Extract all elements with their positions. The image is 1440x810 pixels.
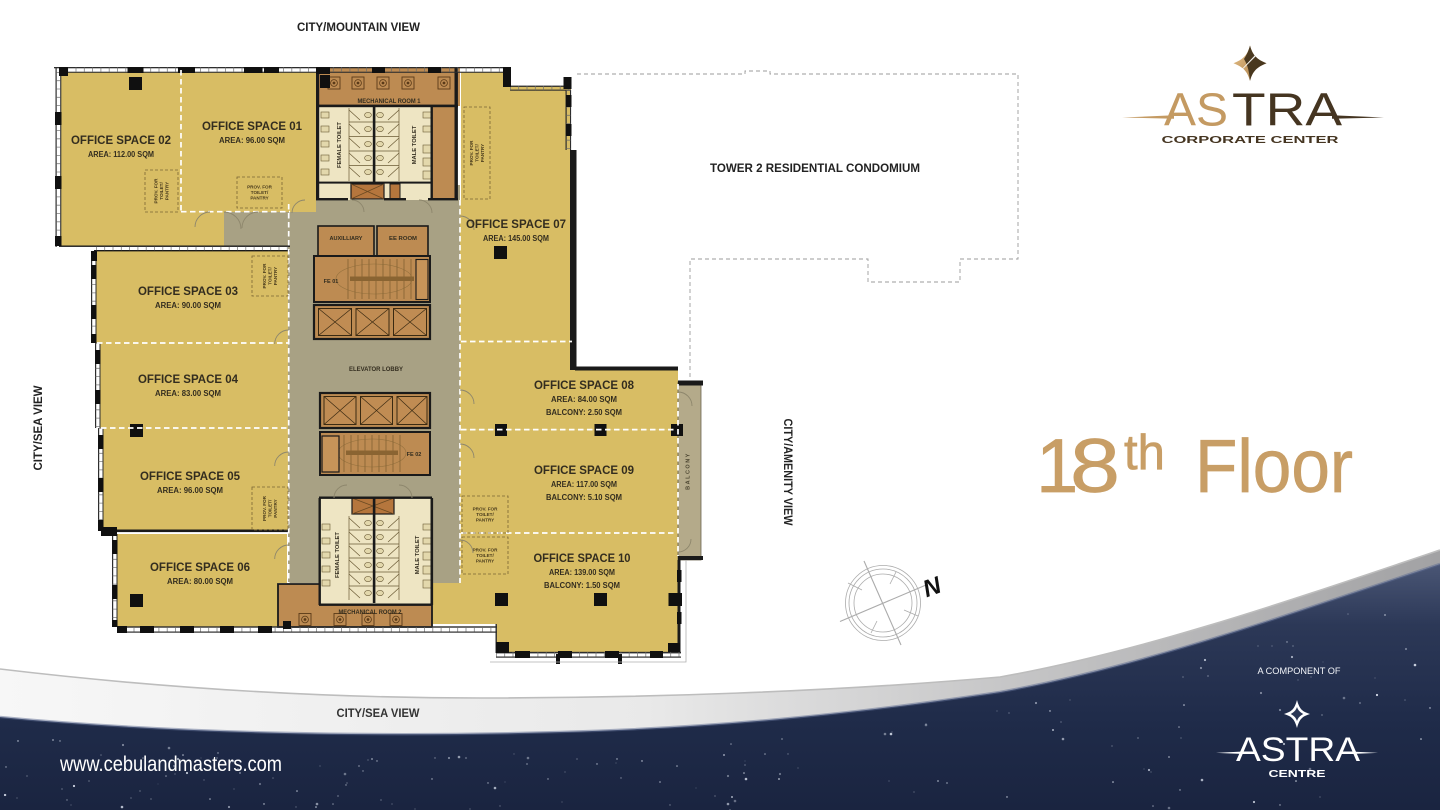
svg-text:FEMALE TOILET: FEMALE TOILET bbox=[337, 122, 343, 168]
svg-text:CITY/SEA VIEW: CITY/SEA VIEW bbox=[337, 708, 420, 720]
svg-text:MECHANICAL ROOM 2: MECHANICAL ROOM 2 bbox=[339, 610, 403, 616]
svg-text:AREA: 139.00 SQM: AREA: 139.00 SQM bbox=[549, 568, 615, 577]
svg-text:EE ROOM: EE ROOM bbox=[389, 236, 417, 242]
svg-text:th: th bbox=[1124, 426, 1165, 480]
svg-text:AREA: 84.00 SQM: AREA: 84.00 SQM bbox=[551, 395, 617, 404]
svg-text:OFFICE SPACE 09: OFFICE SPACE 09 bbox=[534, 463, 634, 477]
svg-text:BALCONY: BALCONY bbox=[686, 452, 692, 490]
svg-text:8: 8 bbox=[1070, 424, 1120, 509]
svg-text:FEMALE TOILET: FEMALE TOILET bbox=[335, 532, 341, 578]
svg-text:AREA: 112.00 SQM: AREA: 112.00 SQM bbox=[88, 150, 154, 159]
svg-text:AREA: 83.00 SQM: AREA: 83.00 SQM bbox=[155, 389, 221, 398]
svg-text:www.cebulandmasters.com: www.cebulandmasters.com bbox=[59, 753, 282, 776]
svg-text:OFFICE SPACE 07: OFFICE SPACE 07 bbox=[466, 217, 566, 231]
svg-text:AREA: 117.00 SQM: AREA: 117.00 SQM bbox=[551, 480, 617, 489]
svg-text:A COMPONENT OF: A COMPONENT OF bbox=[1258, 666, 1341, 677]
svg-text:BALCONY: 2.50 SQM: BALCONY: 2.50 SQM bbox=[546, 408, 622, 417]
svg-text:ASTRA: ASTRA bbox=[1236, 731, 1360, 769]
svg-text:BALCONY: 1.50 SQM: BALCONY: 1.50 SQM bbox=[544, 581, 620, 590]
svg-text:OFFICE SPACE 02: OFFICE SPACE 02 bbox=[71, 133, 171, 147]
svg-text:ELEVATOR LOBBY: ELEVATOR LOBBY bbox=[349, 366, 404, 373]
svg-text:FE 01: FE 01 bbox=[324, 279, 339, 285]
svg-text:OFFICE SPACE 05: OFFICE SPACE 05 bbox=[140, 469, 240, 483]
svg-text:CITY/MOUNTAIN VIEW: CITY/MOUNTAIN VIEW bbox=[297, 22, 420, 34]
svg-text:OFFICE SPACE 08: OFFICE SPACE 08 bbox=[534, 378, 634, 392]
svg-text:AREA: 145.00 SQM: AREA: 145.00 SQM bbox=[483, 234, 549, 243]
svg-text:MALE TOILET: MALE TOILET bbox=[415, 535, 421, 574]
svg-text:AREA: 90.00 SQM: AREA: 90.00 SQM bbox=[155, 301, 221, 310]
svg-text:BALCONY: 5.10 SQM: BALCONY: 5.10 SQM bbox=[546, 493, 622, 502]
svg-text:CITY/SEA VIEW: CITY/SEA VIEW bbox=[33, 385, 45, 470]
svg-text:MALE TOILET: MALE TOILET bbox=[412, 125, 418, 164]
svg-text:FE 02: FE 02 bbox=[407, 452, 422, 458]
svg-text:OFFICE SPACE 10: OFFICE SPACE 10 bbox=[534, 551, 631, 565]
svg-text:CORPORATE CENTER: CORPORATE CENTER bbox=[1162, 135, 1340, 146]
svg-text:AREA: 80.00 SQM: AREA: 80.00 SQM bbox=[167, 577, 233, 586]
svg-text:AREA: 96.00 SQM: AREA: 96.00 SQM bbox=[157, 486, 223, 495]
svg-text:TRA: TRA bbox=[1232, 84, 1342, 136]
svg-text:CENTRE: CENTRE bbox=[1269, 768, 1326, 780]
svg-text:OFFICE SPACE 03: OFFICE SPACE 03 bbox=[138, 284, 238, 298]
svg-text:OFFICE SPACE 04: OFFICE SPACE 04 bbox=[138, 372, 238, 386]
svg-text:Floor: Floor bbox=[1195, 424, 1353, 508]
svg-text:MECHANICAL ROOM 1: MECHANICAL ROOM 1 bbox=[358, 99, 422, 105]
svg-text:OFFICE SPACE 01: OFFICE SPACE 01 bbox=[202, 119, 302, 133]
svg-text:TOWER 2 RESIDENTIAL CONDOMIUM: TOWER 2 RESIDENTIAL CONDOMIUM bbox=[710, 163, 920, 175]
svg-text:AUXILLIARY: AUXILLIARY bbox=[330, 236, 363, 242]
svg-text:CITY/AMENITY VIEW: CITY/AMENITY VIEW bbox=[781, 419, 793, 526]
svg-text:OFFICE SPACE 06: OFFICE SPACE 06 bbox=[150, 560, 250, 574]
svg-text:AREA: 96.00 SQM: AREA: 96.00 SQM bbox=[219, 136, 285, 145]
svg-text:AS: AS bbox=[1164, 84, 1228, 136]
